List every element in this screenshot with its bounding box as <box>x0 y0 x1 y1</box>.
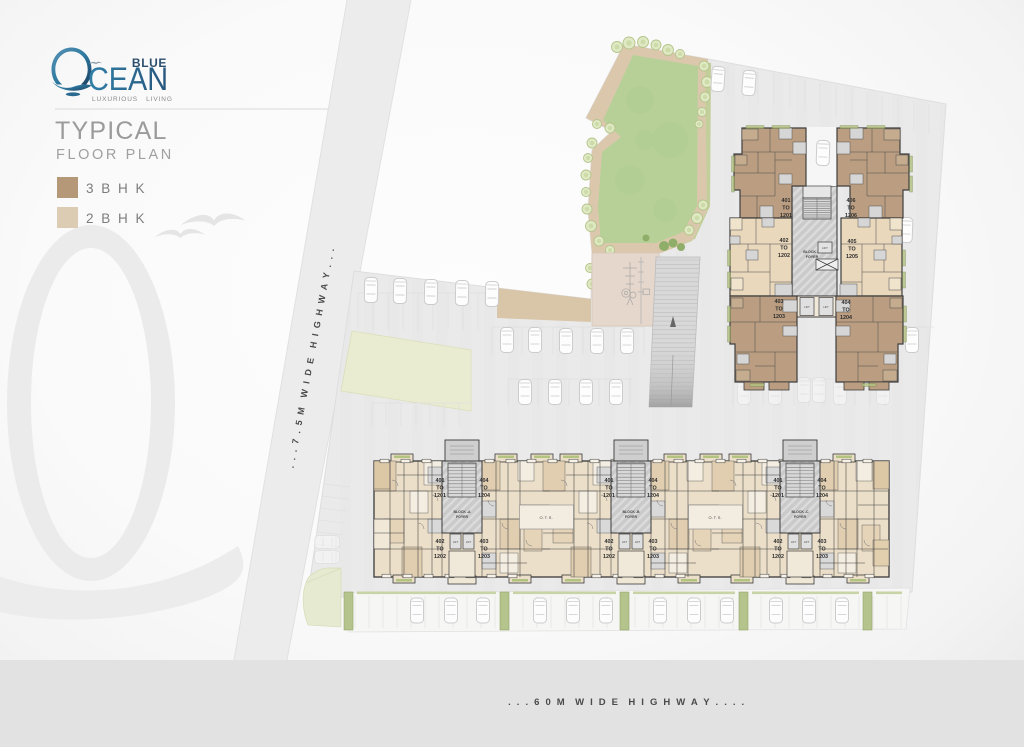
svg-text:TO: TO <box>818 486 825 492</box>
svg-text:LIFT: LIFT <box>466 540 472 544</box>
svg-text:TO: TO <box>480 547 487 553</box>
svg-text:FLOOR PLAN: FLOOR PLAN <box>56 147 174 163</box>
svg-text:O.T.S.: O.T.S. <box>708 515 722 520</box>
svg-text:TO: TO <box>842 308 849 314</box>
svg-text:403: 403 <box>775 299 784 305</box>
svg-text:. . . 6 0 M W I D E H I G H: . . . 6 0 M W I D E H I G H W A Y . . . … <box>508 697 746 708</box>
svg-text:1203: 1203 <box>773 314 785 320</box>
svg-text:402: 402 <box>605 539 614 545</box>
svg-text:405: 405 <box>848 239 857 245</box>
svg-text:1202: 1202 <box>603 554 615 560</box>
svg-text:403: 403 <box>818 539 827 545</box>
svg-text:FOYER: FOYER <box>456 515 469 519</box>
svg-text:401: 401 <box>774 478 783 484</box>
svg-text:1204: 1204 <box>840 315 852 321</box>
svg-text:BLUE: BLUE <box>132 56 167 70</box>
svg-text:TO: TO <box>780 246 787 252</box>
svg-text:402: 402 <box>780 238 789 244</box>
svg-text:LIFT: LIFT <box>804 540 810 544</box>
svg-text:1202: 1202 <box>434 554 446 560</box>
svg-text:402: 402 <box>774 539 783 545</box>
svg-text:LIFT: LIFT <box>453 540 459 544</box>
svg-text:1202: 1202 <box>778 253 790 259</box>
svg-text:TO: TO <box>818 547 825 553</box>
svg-text:FOYER: FOYER <box>806 255 819 259</box>
svg-text:1201: 1201 <box>603 493 615 499</box>
svg-text:TO: TO <box>649 547 656 553</box>
svg-text:LIFT: LIFT <box>635 540 641 544</box>
svg-text:FOYER: FOYER <box>625 515 638 519</box>
svg-text:401: 401 <box>605 478 614 484</box>
svg-text:403: 403 <box>649 539 658 545</box>
svg-text:404: 404 <box>649 478 658 484</box>
svg-text:TO: TO <box>775 307 782 313</box>
svg-text:1203: 1203 <box>816 554 828 560</box>
svg-text:3 B H K: 3 B H K <box>86 181 147 196</box>
svg-text:LUXURIOUS LIVING: LUXURIOUS LIVING <box>92 96 173 103</box>
svg-text:TO: TO <box>649 486 656 492</box>
svg-text:TO: TO <box>848 247 855 253</box>
svg-text:TO: TO <box>436 547 443 553</box>
svg-text:O.T.S.: O.T.S. <box>539 515 553 520</box>
svg-text:404: 404 <box>842 300 851 306</box>
svg-text:BLOCK -A: BLOCK -A <box>453 510 471 514</box>
svg-text:401: 401 <box>782 198 791 204</box>
svg-text:1204: 1204 <box>478 493 490 499</box>
svg-text:2 B H K: 2 B H K <box>86 211 147 226</box>
svg-text:BLOCK -B: BLOCK -B <box>622 510 640 514</box>
svg-text:1203: 1203 <box>478 554 490 560</box>
svg-text:LIFT: LIFT <box>804 305 810 309</box>
svg-text:1203: 1203 <box>647 554 659 560</box>
svg-text:BLOCK -C: BLOCK -C <box>791 510 809 514</box>
svg-text:401: 401 <box>436 478 445 484</box>
svg-text:1201: 1201 <box>780 213 792 219</box>
svg-text:LIFT: LIFT <box>791 540 797 544</box>
svg-text:403: 403 <box>480 539 489 545</box>
svg-text:1204: 1204 <box>816 493 828 499</box>
svg-text:TO: TO <box>605 486 612 492</box>
svg-text:404: 404 <box>480 478 489 484</box>
svg-text:1201: 1201 <box>434 493 446 499</box>
svg-text:TO: TO <box>436 486 443 492</box>
svg-text:TO: TO <box>480 486 487 492</box>
svg-text:1206: 1206 <box>845 213 857 219</box>
svg-text:1205: 1205 <box>846 254 858 260</box>
svg-text:TO: TO <box>774 547 781 553</box>
svg-text:1201: 1201 <box>772 493 784 499</box>
svg-text:404: 404 <box>818 478 827 484</box>
svg-text:1202: 1202 <box>772 554 784 560</box>
svg-text:TO: TO <box>847 206 854 212</box>
svg-text:FOYER: FOYER <box>794 515 807 519</box>
svg-text:LIFT: LIFT <box>822 246 828 250</box>
svg-text:1204: 1204 <box>647 493 659 499</box>
svg-text:TO: TO <box>782 206 789 212</box>
svg-text:402: 402 <box>436 539 445 545</box>
svg-text:406: 406 <box>847 198 856 204</box>
svg-text:LIFT: LIFT <box>622 540 628 544</box>
svg-text:TO: TO <box>774 486 781 492</box>
svg-text:LIFT: LIFT <box>823 305 829 309</box>
svg-text:TYPICAL: TYPICAL <box>55 117 168 145</box>
svg-text:TO: TO <box>605 547 612 553</box>
